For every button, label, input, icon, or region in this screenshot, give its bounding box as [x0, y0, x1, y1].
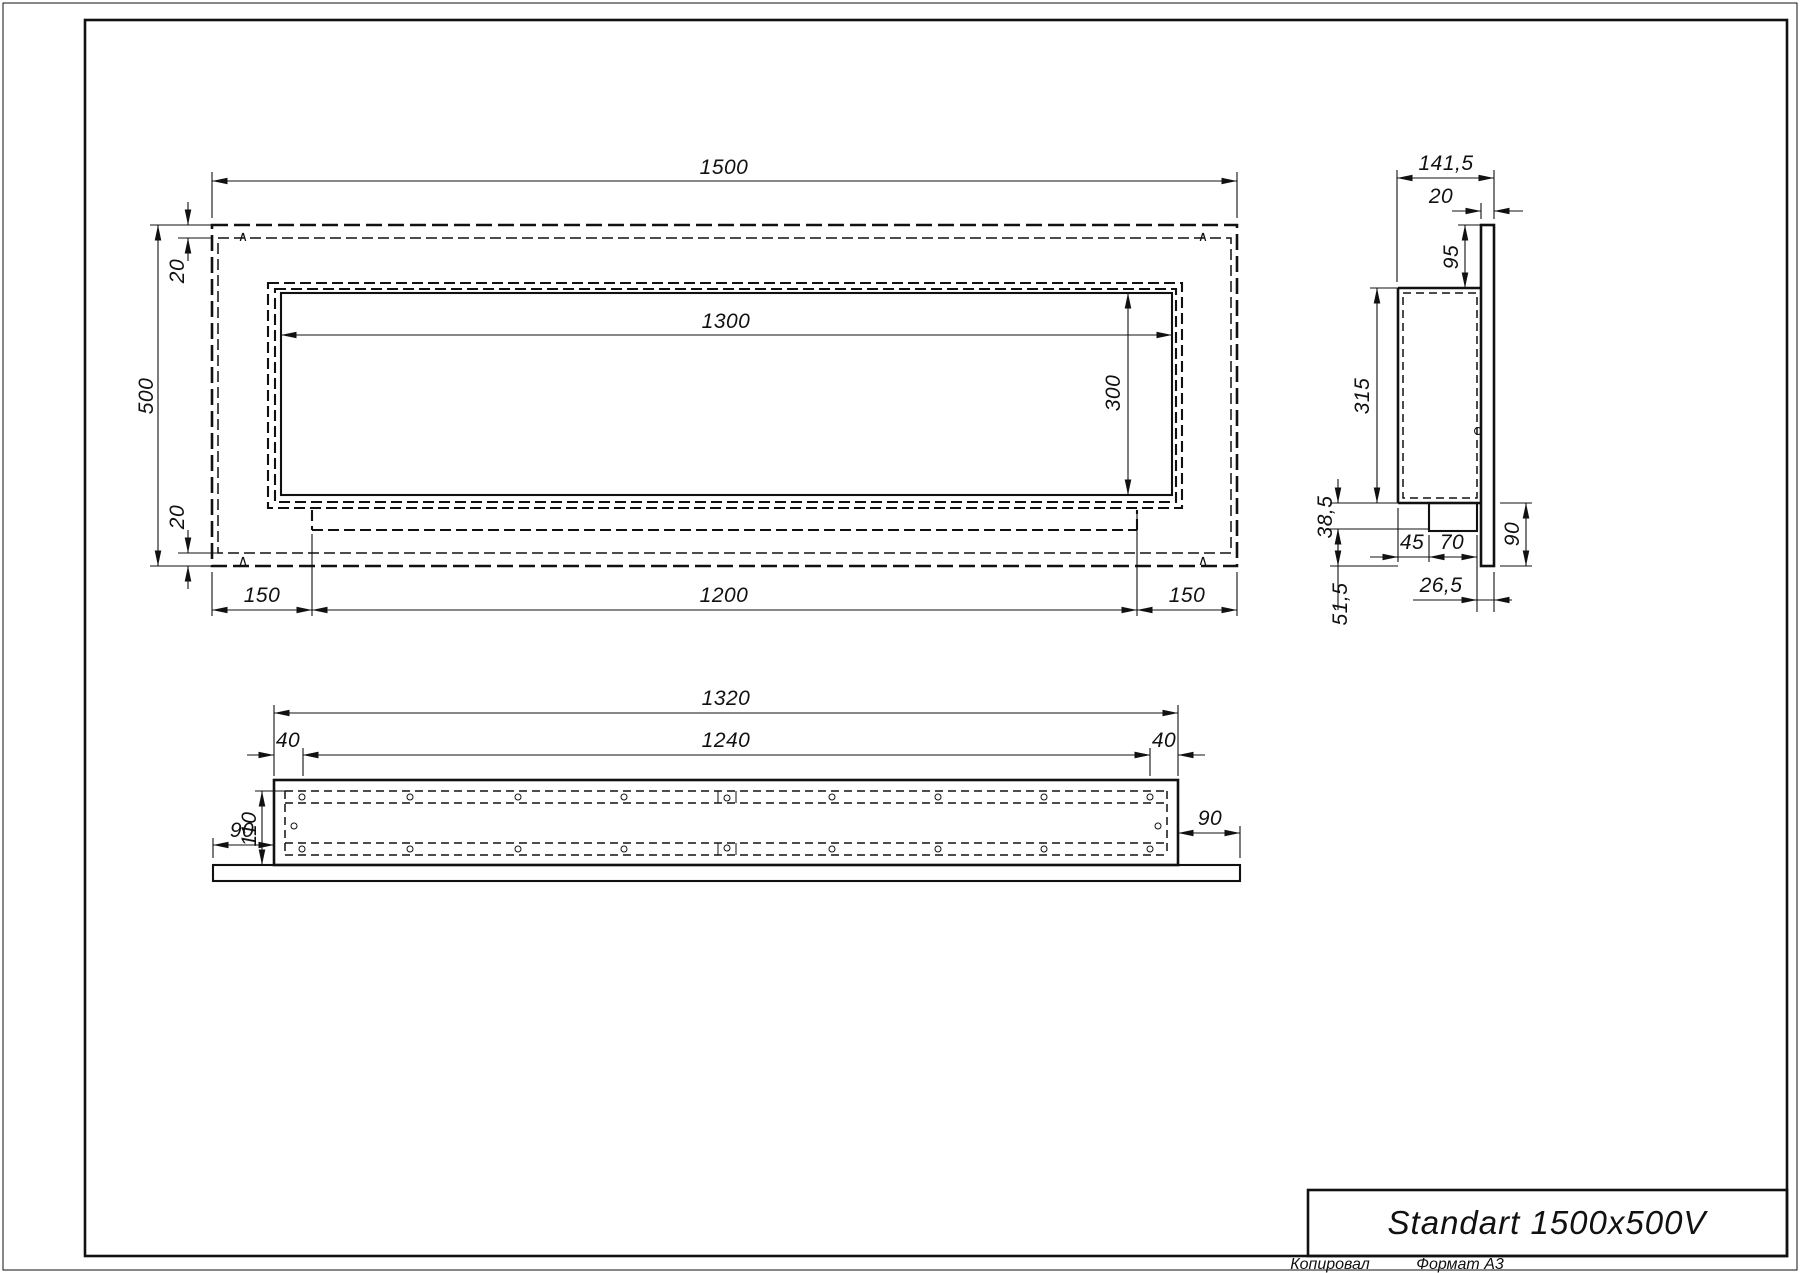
front-outer-outline [212, 225, 1237, 566]
side-view-dimensions: 141,5 20 95 315 38,5 51,5 45 70 [1314, 152, 1532, 625]
section-mark: ∧ [1198, 228, 1208, 244]
side-wall-plate [1481, 225, 1494, 566]
bottom-dim-40-left: 40 [276, 729, 300, 752]
side-dim-95: 95 [1440, 245, 1463, 269]
front-dim-20-bottom: 20 [166, 505, 189, 530]
front-dim-1200: 1200 [700, 584, 749, 607]
side-dim-45: 45 [1400, 531, 1424, 554]
front-dim-500: 500 [135, 378, 158, 415]
front-dim-300: 300 [1102, 375, 1125, 412]
side-dim-38-5: 38,5 [1314, 496, 1337, 539]
side-dim-20: 20 [1428, 185, 1453, 208]
side-view: 141,5 20 95 315 38,5 51,5 45 70 [1314, 152, 1532, 625]
front-dim-1300: 1300 [702, 310, 751, 333]
sheet-border [3, 3, 1797, 1270]
front-dim-1500: 1500 [700, 156, 749, 179]
drawing-title: Standart 1500x500V [1388, 1204, 1709, 1241]
side-dim-51-5: 51,5 [1329, 583, 1352, 626]
section-mark: ∧ [238, 552, 248, 568]
bottom-view: 1320 1240 40 40 90 90 110 [213, 687, 1240, 881]
front-view-geometry: ∧ ∧ ∧ ∧ [212, 225, 1237, 568]
bottom-dim-1320: 1320 [702, 687, 751, 710]
front-flange-hidden-line [218, 238, 1231, 553]
side-burner-tray [1429, 503, 1477, 531]
front-dim-150-right: 150 [1169, 584, 1206, 607]
sheet-edge [3, 3, 1797, 1270]
bottom-dim-1240: 1240 [702, 729, 751, 752]
section-mark: ∧ [1198, 552, 1208, 568]
bottom-extension-lines [213, 705, 1240, 858]
front-view: ∧ ∧ ∧ ∧ 1500 500 20 20 1300 [135, 156, 1237, 616]
bottom-dim-110: 110 [238, 812, 261, 847]
bottom-dim-90-right: 90 [1198, 807, 1222, 830]
side-view-geometry [1398, 225, 1494, 566]
copied-label: Копировал [1290, 1256, 1370, 1273]
bottom-view-geometry [213, 780, 1240, 881]
drawing-sheet: ∧ ∧ ∧ ∧ 1500 500 20 20 1300 [0, 0, 1800, 1273]
section-mark: ∧ [238, 228, 248, 244]
side-body-hidden-lines [1403, 293, 1477, 498]
side-dim-315: 315 [1351, 378, 1374, 415]
front-dim-150-left: 150 [244, 584, 281, 607]
bottom-wall-plate-strip [213, 865, 1240, 881]
bottom-dim-40-right: 40 [1152, 729, 1176, 752]
side-dim-141-5: 141,5 [1418, 152, 1473, 175]
side-dim-26-5: 26,5 [1419, 574, 1463, 597]
side-dim-70: 70 [1440, 531, 1464, 554]
title-block: Standart 1500x500V Копировал Формат А3 [1290, 1190, 1787, 1273]
side-dim-90: 90 [1501, 522, 1524, 546]
side-body-outline [1398, 288, 1481, 503]
front-dim-20-top: 20 [166, 259, 189, 284]
drawing-frame [85, 20, 1787, 1256]
front-burner-lip-hidden [312, 510, 1137, 530]
format-label: Формат А3 [1416, 1256, 1504, 1273]
bottom-view-dimensions: 1320 1240 40 40 90 90 110 [213, 687, 1240, 865]
